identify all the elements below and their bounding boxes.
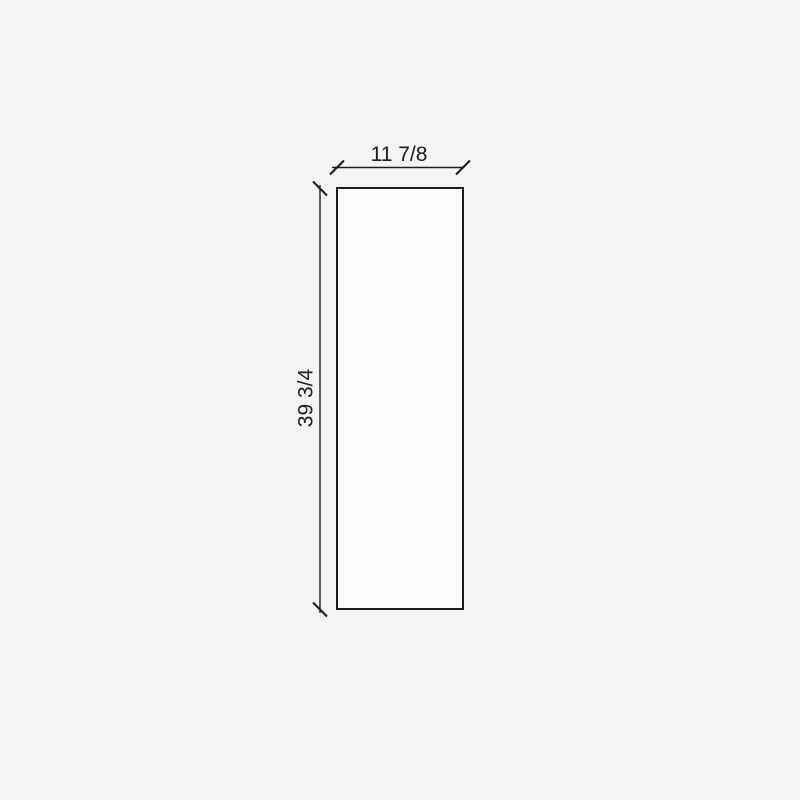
width-dimension-label: 11 7/8 [371, 143, 428, 166]
dimension-drawing: 11 7/8 39 3/4 [0, 0, 800, 800]
height-dimension-label: 39 3/4 [295, 368, 318, 427]
panel-outline [337, 188, 463, 609]
drawing-canvas: 11 7/8 39 3/4 [0, 0, 800, 800]
